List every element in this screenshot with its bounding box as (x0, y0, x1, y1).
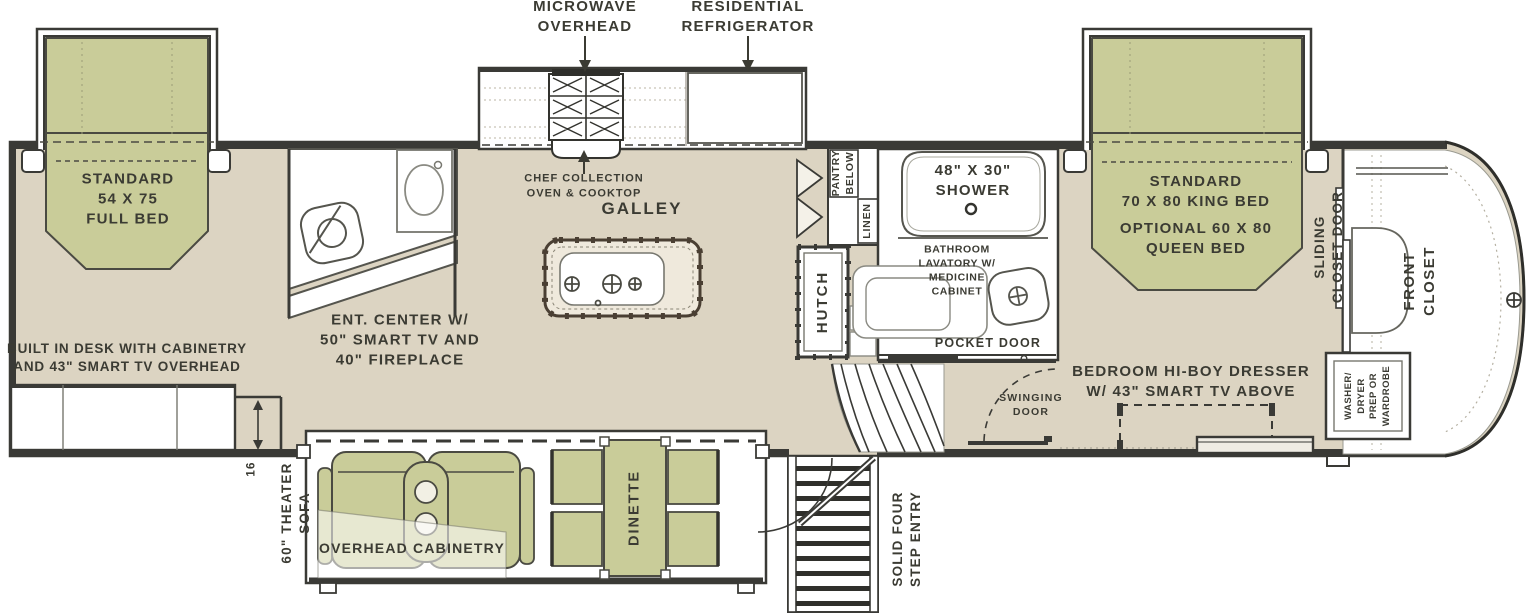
toilet-icon (986, 265, 1051, 327)
full-bed-slideout (22, 29, 230, 269)
bathroom (853, 149, 1058, 362)
floor-plan-drawing (0, 0, 1536, 616)
bath-sink-icon (397, 150, 452, 232)
arrow-down-icon (579, 36, 754, 72)
sofa-dinette-slideout (297, 431, 769, 593)
shower-icon (898, 152, 1048, 238)
washer-dryer-cabinet (1326, 353, 1410, 439)
crosshair-icon (1507, 293, 1521, 307)
cooktop-icon (549, 69, 623, 158)
kitchen-island (545, 240, 700, 316)
refrigerator-icon (688, 73, 802, 143)
entry-steps-icon (758, 456, 878, 612)
galley-slideout (479, 68, 806, 158)
rv-floor-plan: MICROWAVE OVERHEAD RESIDENTIAL REFRIGERA… (0, 0, 1536, 616)
hutch-cabinet (798, 247, 848, 357)
tv-icon (1197, 437, 1313, 453)
vanity-sink-icon (853, 266, 987, 338)
front-closet (1326, 142, 1524, 456)
king-bed-slideout (1064, 29, 1328, 290)
